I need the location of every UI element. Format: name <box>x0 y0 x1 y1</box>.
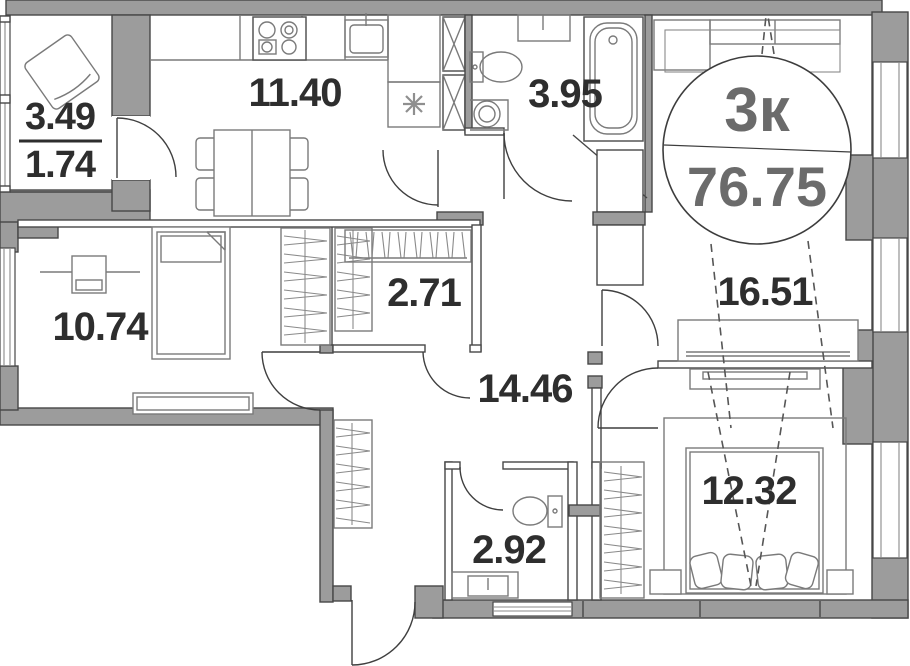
balcony-area-label: 3.49 <box>25 96 95 138</box>
vanity-sink-icon <box>518 15 570 41</box>
wardrobe-hangers-icon <box>335 228 372 331</box>
snowflake-marker-icon <box>403 93 425 115</box>
toilet-icon <box>470 52 522 82</box>
kitchen-sink-icon <box>345 13 388 57</box>
floor-plan-drawing: 3.49 1.74 11.40 3.95 16.51 10.74 2.71 14… <box>0 0 910 666</box>
wardrobe-area-label: 2.71 <box>387 271 462 315</box>
bedroom-left-area-label: 10.74 <box>52 305 149 349</box>
dining-table-icon <box>196 130 308 216</box>
window-right-middle <box>873 238 907 332</box>
bedroom-left-door <box>262 352 320 410</box>
living-room-area-label: 16.51 <box>717 270 813 314</box>
bedroom-right-area-label: 12.32 <box>701 469 796 513</box>
wall-vent <box>493 602 572 616</box>
wc-sink-icon <box>452 572 518 598</box>
bathroom-door <box>504 133 572 201</box>
kitchen-door <box>383 150 438 207</box>
entrance-door <box>352 600 415 665</box>
dresser-icon <box>133 393 253 414</box>
wardrobe-hangers-icon <box>281 228 330 345</box>
hall-closet-lower <box>597 225 643 285</box>
stove-icon <box>253 17 306 60</box>
balcony-glazing <box>0 16 10 192</box>
wardrobe-hangers-icon <box>600 462 644 598</box>
wardrobe-door <box>423 352 470 398</box>
balcony-door <box>112 116 176 180</box>
kitchen-area-label: 11.40 <box>249 71 342 115</box>
sofa-icon <box>678 320 858 361</box>
hall-closet-upper <box>597 150 643 212</box>
single-bed-icon <box>152 227 230 359</box>
bedroom-right-door <box>598 368 658 428</box>
apartment-badge: 3к 76.75 <box>663 56 851 244</box>
floor-plan: 3.49 1.74 11.40 3.95 16.51 10.74 2.71 14… <box>0 0 910 666</box>
hanger-rail-icon <box>345 230 471 262</box>
balcony-reduced-area-label: 1.74 <box>25 144 96 186</box>
window-left <box>0 248 15 366</box>
wc-door <box>460 467 503 510</box>
desk-icon <box>72 256 106 293</box>
toilet-icon <box>513 496 562 527</box>
tall-cabinet-icon <box>443 17 465 130</box>
badge-total-area: 76.75 <box>687 155 827 218</box>
badge-rooms-label: 3к <box>724 76 790 145</box>
wc-area-label: 2.92 <box>472 528 546 572</box>
window-right-top <box>873 62 907 158</box>
living-room-door <box>602 290 658 346</box>
window-right-bottom <box>873 442 907 558</box>
round-sink-icon <box>470 100 508 130</box>
hallway-area-label: 14.46 <box>477 367 572 411</box>
bathroom-area-label: 3.95 <box>528 72 603 116</box>
entry-closet <box>334 420 372 528</box>
wall-block <box>593 212 645 225</box>
